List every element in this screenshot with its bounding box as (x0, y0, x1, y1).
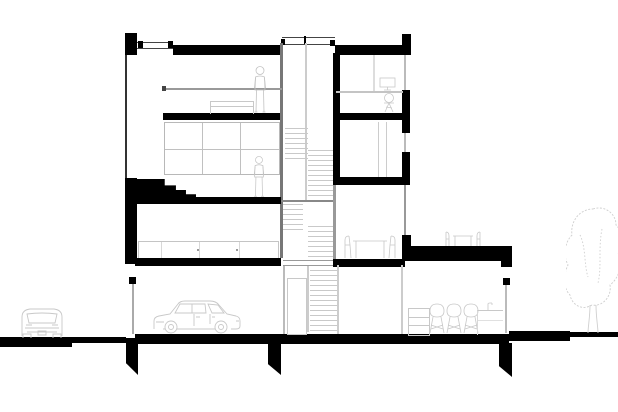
person-top-floor (252, 66, 268, 114)
foundation-pier-middle (268, 341, 281, 375)
faucet (485, 302, 493, 311)
ground-floor-slab-left (135, 258, 281, 266)
kitchen-cabinet (408, 308, 430, 336)
bed-mattress-line (211, 106, 253, 107)
basement-counter (477, 310, 503, 335)
study-partition (373, 55, 375, 91)
front-wall-solid (125, 178, 137, 264)
stair-flight-upper-b[interactable] (308, 150, 333, 196)
right-parapet (402, 34, 411, 55)
garden-wall-cap (503, 278, 510, 285)
dining-glass-door[interactable] (404, 185, 406, 235)
counter-shelf-line (478, 320, 503, 321)
garden-ground (509, 331, 570, 341)
street-pavement (72, 337, 126, 343)
terrace-dining-set (441, 230, 485, 247)
stair-spine-rail (305, 43, 307, 200)
study-monitor (379, 77, 397, 92)
guardrail-post (162, 86, 166, 91)
mezzanine-floor-slab (163, 113, 282, 120)
counter-handle-2 (236, 249, 238, 251)
rear-window-bedroom (404, 133, 406, 152)
street-car (18, 302, 66, 338)
architectural-section-drawing (0, 0, 618, 412)
rear-window-study (404, 55, 406, 90)
ground-floor-slab-right (333, 259, 405, 267)
rear-wall-upper (402, 90, 410, 133)
mezzanine-bed (210, 101, 254, 114)
terrace-edge-upstand (501, 246, 512, 267)
cabinet-shelf-2 (409, 325, 429, 326)
dining-table-set (343, 233, 397, 259)
basement-wall-2 (401, 265, 403, 334)
stair-skylight (282, 37, 335, 45)
dining-room-wall (333, 185, 336, 259)
counter-handle-1 (197, 249, 199, 251)
terrace-slab (402, 246, 503, 261)
skylight-curb-left (138, 41, 143, 48)
basement-floor-slab (135, 334, 509, 344)
stair-flight-lower-b[interactable] (308, 226, 333, 258)
garage-car (150, 296, 244, 334)
stair-flight-lower-a[interactable] (283, 204, 303, 231)
foundation-pier-right (499, 343, 512, 377)
garden-tree (566, 205, 618, 333)
garage-door[interactable] (132, 284, 134, 334)
left-parapet (125, 33, 137, 55)
stair-landing-line-middle (281, 200, 333, 202)
person-middle-floor (251, 156, 267, 198)
basement-wall-1 (337, 265, 339, 334)
interior-steps[interactable] (137, 179, 196, 199)
stair-flight-basement[interactable] (310, 270, 338, 332)
street-pavement-curb (0, 337, 72, 347)
cabinet-shelf-1 (409, 317, 429, 318)
basement-door[interactable] (287, 278, 307, 335)
foundation-pier-left (126, 338, 138, 375)
garage-door-header (129, 277, 136, 284)
basement-stair-rail (307, 266, 309, 332)
roof-slab-right (335, 45, 404, 55)
kitchen-counter (138, 241, 279, 259)
bar-stools (428, 301, 480, 334)
middle-floor-slab (135, 197, 281, 204)
roof-slab-left (173, 45, 282, 55)
rear-second-floor-slab (333, 113, 407, 120)
rear-first-floor-slab (333, 177, 406, 185)
bedroom-door[interactable] (378, 122, 387, 177)
front-facade-glazing (125, 55, 127, 178)
stair-flight-upper-a[interactable] (285, 128, 308, 162)
garden-wall-line (505, 285, 507, 333)
garage-partition-wall (283, 266, 285, 334)
study-chair (381, 93, 397, 113)
